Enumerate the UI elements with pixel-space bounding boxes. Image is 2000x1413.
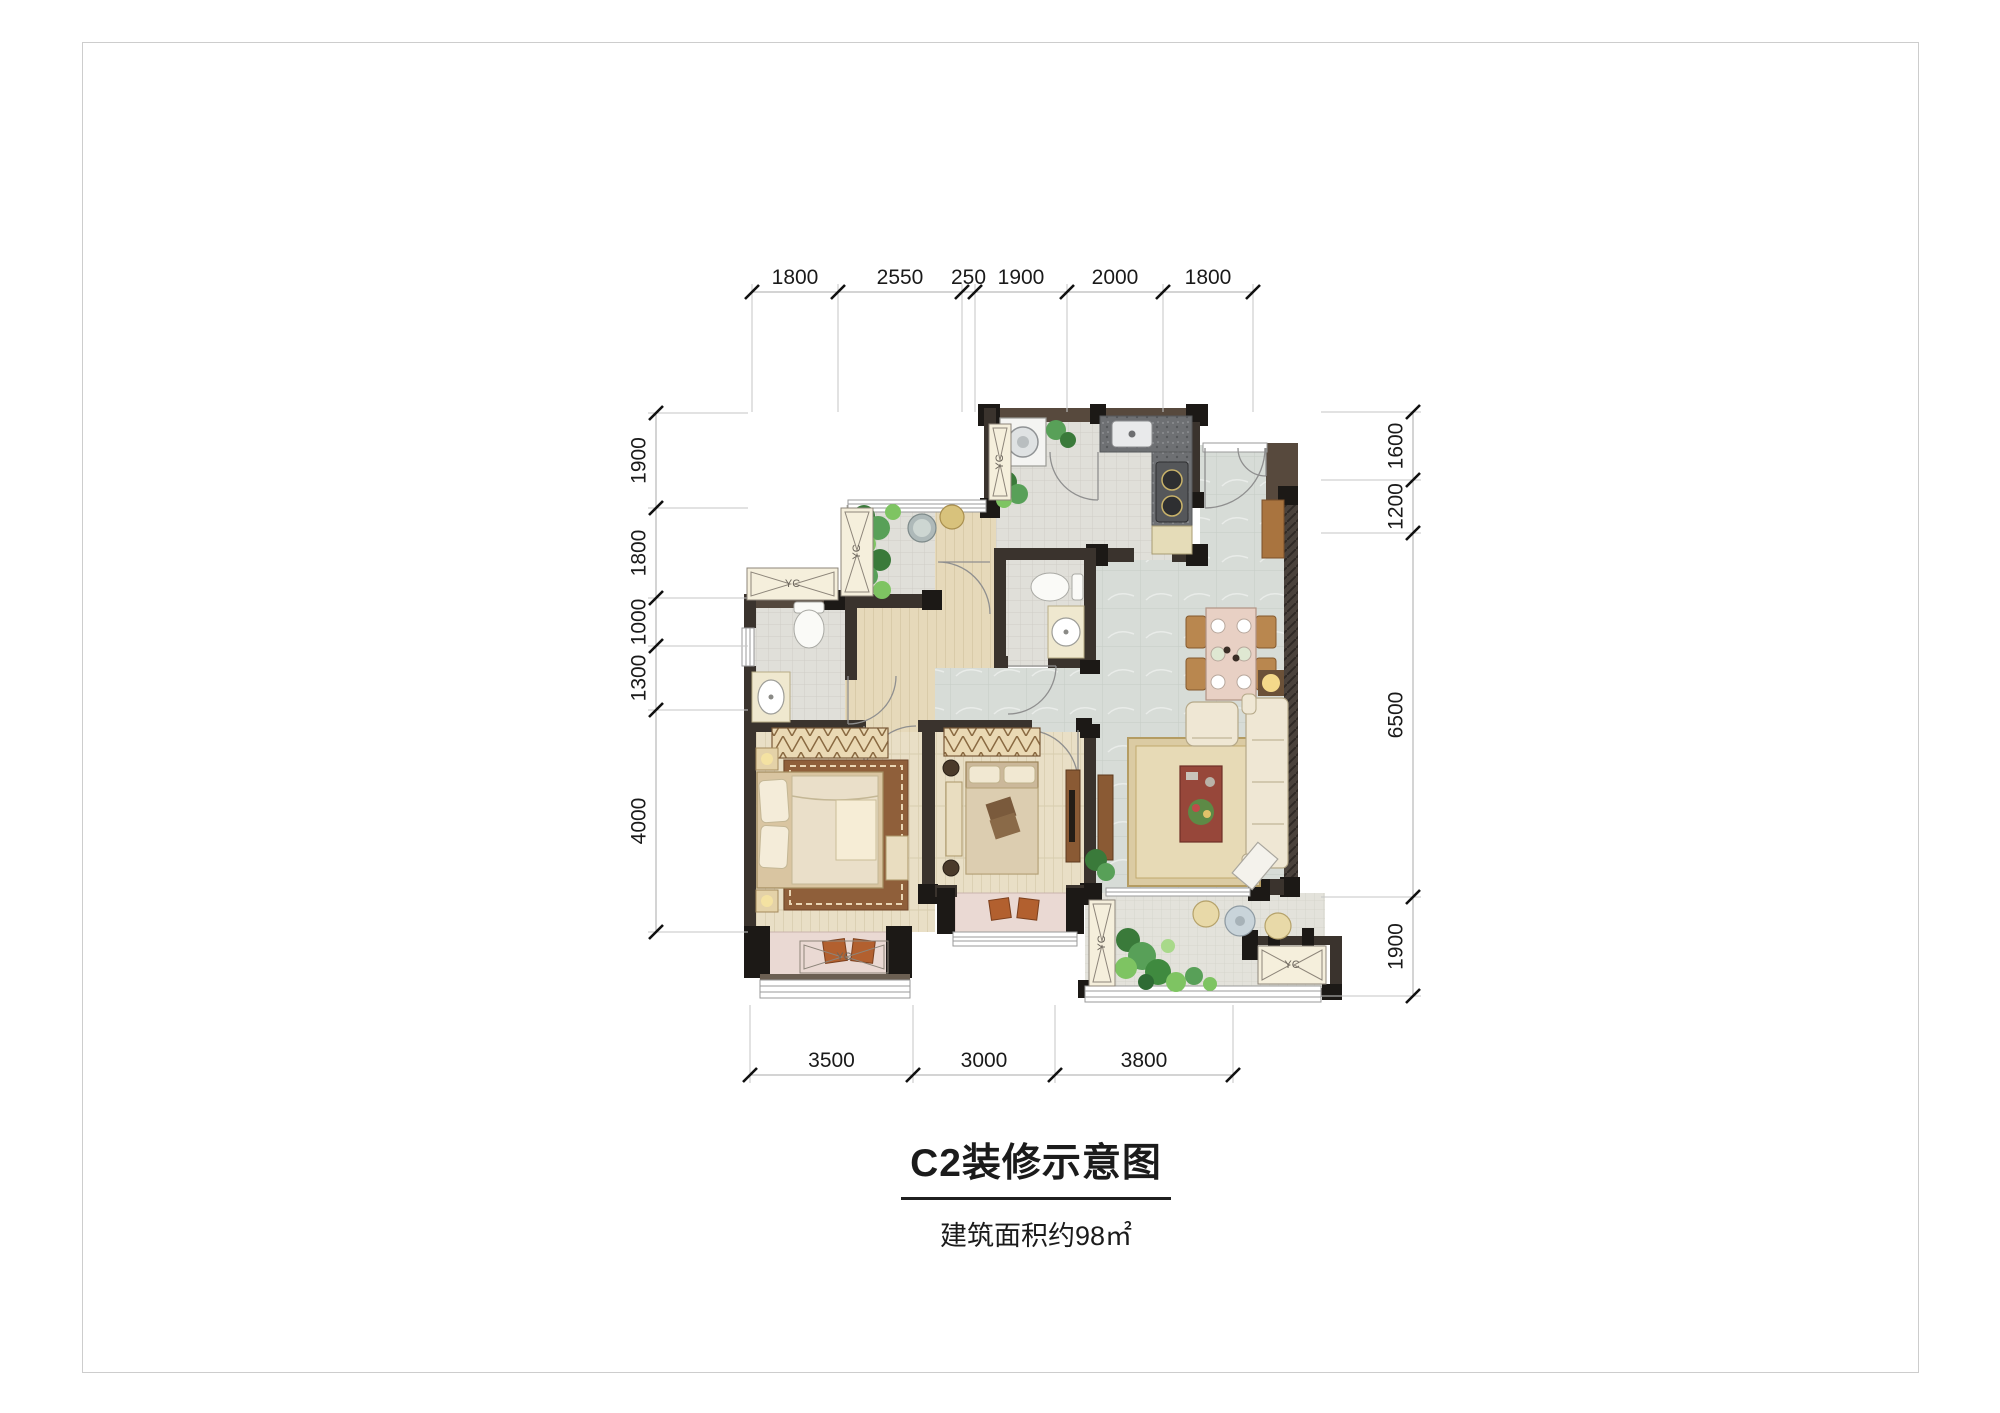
toilet-bath2 xyxy=(1031,573,1083,601)
dim-label: 1300 xyxy=(628,655,651,702)
dim-top: 18002550250190020001800 xyxy=(745,266,1260,412)
ac-marker-label: YC xyxy=(836,951,851,963)
dim-label: 4000 xyxy=(628,798,651,845)
plan-subtitle: 建筑面积约98㎡ xyxy=(880,1214,1192,1253)
dim-label: 1600 xyxy=(1385,423,1408,470)
dim-label: 2550 xyxy=(877,266,924,289)
ac-marker-label: YC xyxy=(851,544,863,559)
bedroom2-bed xyxy=(966,762,1038,874)
dim-label: 1800 xyxy=(628,530,651,577)
dim-label: 1200 xyxy=(1385,483,1408,530)
dim-bottom: 350030003800 xyxy=(743,1005,1240,1083)
living-tv-cabinet xyxy=(1098,775,1113,860)
bedroom2-planter2 xyxy=(943,860,959,876)
ac-platform-balcony-left: YC xyxy=(1089,900,1115,986)
dim-left: 19001800100013004000 xyxy=(628,406,748,939)
bedroom2-bay-seat xyxy=(955,893,1075,932)
dim-label: 1800 xyxy=(772,266,819,289)
bedroom2-bay-window xyxy=(953,932,1077,946)
master-bed xyxy=(757,772,883,888)
dim-label: 250 xyxy=(951,266,986,289)
ac-platform-utility: YC xyxy=(989,424,1011,500)
title-block: C2装修示意图 建筑面积约98㎡ xyxy=(880,1142,1192,1253)
master-bay-window xyxy=(760,980,910,998)
ac-platform-left-upper: YC xyxy=(747,568,838,600)
floor-lamp xyxy=(1258,670,1284,696)
dim-label: 6500 xyxy=(1385,692,1408,739)
dim-label: 1800 xyxy=(1185,266,1232,289)
coffee-table xyxy=(1180,766,1222,842)
balcony-slider xyxy=(1106,888,1250,896)
floor-plan-page: 1800255025019002000180035003000380019001… xyxy=(0,0,2000,1413)
dim-label: 1900 xyxy=(998,266,1045,289)
dim-label: 1000 xyxy=(628,599,651,646)
vanity-bath2 xyxy=(1048,606,1084,658)
hallway-wood-vertical xyxy=(935,512,996,668)
ac-marker-label: YC xyxy=(1096,935,1108,950)
dim-label: 3500 xyxy=(808,1049,855,1072)
bedroom2-bench xyxy=(946,782,962,856)
toilet-bath1 xyxy=(794,602,824,648)
ac-marker-label: YC xyxy=(1284,959,1299,971)
balcony-railing xyxy=(1085,986,1321,1002)
dim-label: 3000 xyxy=(961,1049,1008,1072)
ac-platform-balcony-right: YC xyxy=(1258,946,1326,984)
sofa xyxy=(1242,694,1288,874)
plan-title: C2装修示意图 xyxy=(880,1142,1192,1187)
dim-label: 1900 xyxy=(1385,923,1408,970)
bedroom2-planter1 xyxy=(943,760,959,776)
bathroom1-window xyxy=(742,628,754,666)
ac-marker-label: YC xyxy=(785,578,800,590)
dim-label: 3800 xyxy=(1121,1049,1168,1072)
title-underline xyxy=(901,1197,1171,1200)
dim-label: 2000 xyxy=(1092,266,1139,289)
kitchen-lower-cabinet xyxy=(1152,526,1192,554)
foyer-cabinet xyxy=(1262,500,1284,558)
kitchen-faucet xyxy=(1129,431,1136,438)
dim-right: 1600120065001900 xyxy=(1321,405,1421,1003)
ac-platform-left-vert: YC xyxy=(841,508,873,596)
hallway-wood-horizontal xyxy=(845,600,935,732)
bedroom2-wardrobe xyxy=(944,728,1040,756)
vanity-bath1 xyxy=(752,672,790,722)
dim-label: 1900 xyxy=(628,437,651,484)
ac-marker-label: YC xyxy=(994,454,1006,469)
master-bed-stool xyxy=(886,836,908,880)
armchair xyxy=(1186,702,1238,746)
master-wardrobe xyxy=(772,728,888,758)
